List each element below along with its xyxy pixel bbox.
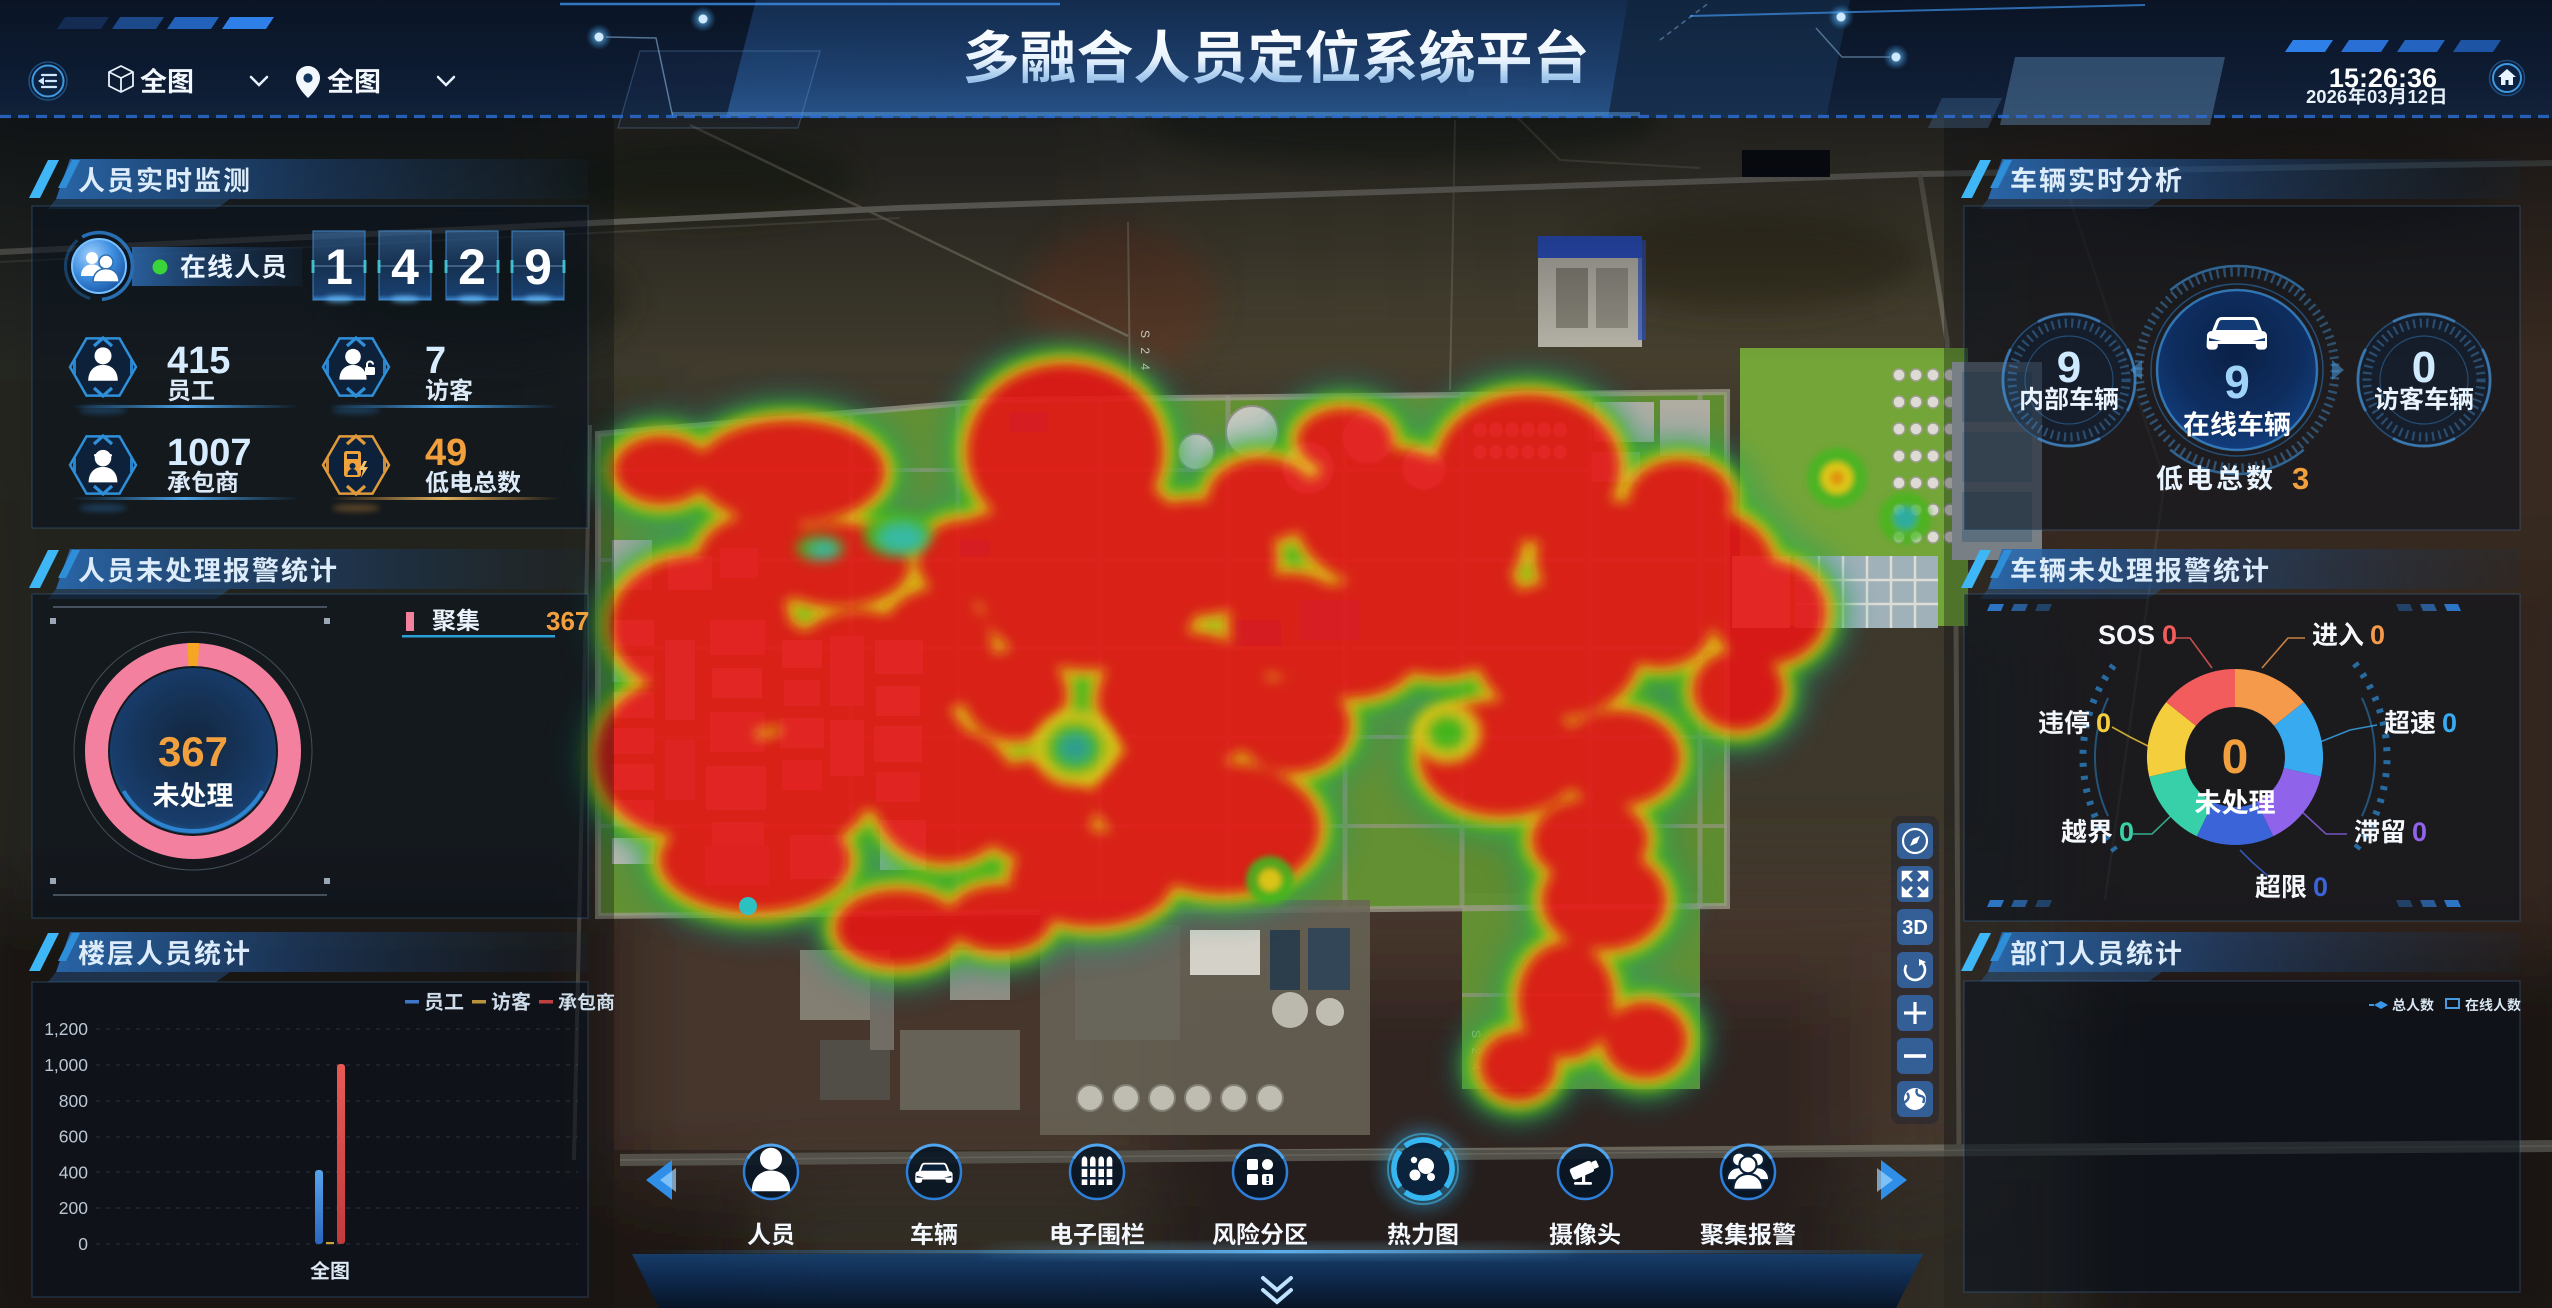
svg-text:03: 03 xyxy=(2367,86,2388,107)
svg-text:4: 4 xyxy=(391,239,419,295)
svg-text:12: 12 xyxy=(2408,86,2429,107)
svg-text:2026: 2026 xyxy=(2306,86,2347,107)
svg-text:1007: 1007 xyxy=(167,432,252,474)
svg-text:0: 0 xyxy=(2096,708,2111,738)
svg-text:600: 600 xyxy=(59,1127,88,1147)
svg-text:9: 9 xyxy=(2224,356,2250,408)
svg-text:0: 0 xyxy=(78,1234,88,1254)
svg-text:0: 0 xyxy=(2162,620,2177,650)
svg-text:0: 0 xyxy=(2313,872,2328,902)
svg-text:0: 0 xyxy=(2442,708,2457,738)
svg-text:0: 0 xyxy=(2412,343,2436,392)
svg-text:800: 800 xyxy=(59,1091,88,1111)
svg-text:0: 0 xyxy=(2370,620,2385,650)
svg-text:2: 2 xyxy=(458,239,486,295)
svg-text:1: 1 xyxy=(325,239,353,295)
svg-text:9: 9 xyxy=(524,239,552,295)
svg-text:SOS: SOS xyxy=(2098,620,2155,650)
svg-text:3D: 3D xyxy=(1902,917,1928,939)
svg-text:0: 0 xyxy=(2412,817,2427,847)
svg-text:400: 400 xyxy=(59,1162,88,1182)
svg-text:200: 200 xyxy=(59,1198,88,1218)
svg-text:1,000: 1,000 xyxy=(44,1055,88,1075)
svg-text:1,200: 1,200 xyxy=(44,1019,88,1039)
svg-text:3: 3 xyxy=(2292,461,2309,496)
svg-text:49: 49 xyxy=(425,432,467,474)
svg-text:367: 367 xyxy=(546,606,589,636)
svg-text:0: 0 xyxy=(2222,731,2249,784)
svg-text:9: 9 xyxy=(2057,343,2081,392)
svg-text:367: 367 xyxy=(158,728,228,775)
svg-text:7: 7 xyxy=(425,340,446,382)
svg-text:415: 415 xyxy=(167,340,230,382)
svg-text:0: 0 xyxy=(2119,817,2134,847)
